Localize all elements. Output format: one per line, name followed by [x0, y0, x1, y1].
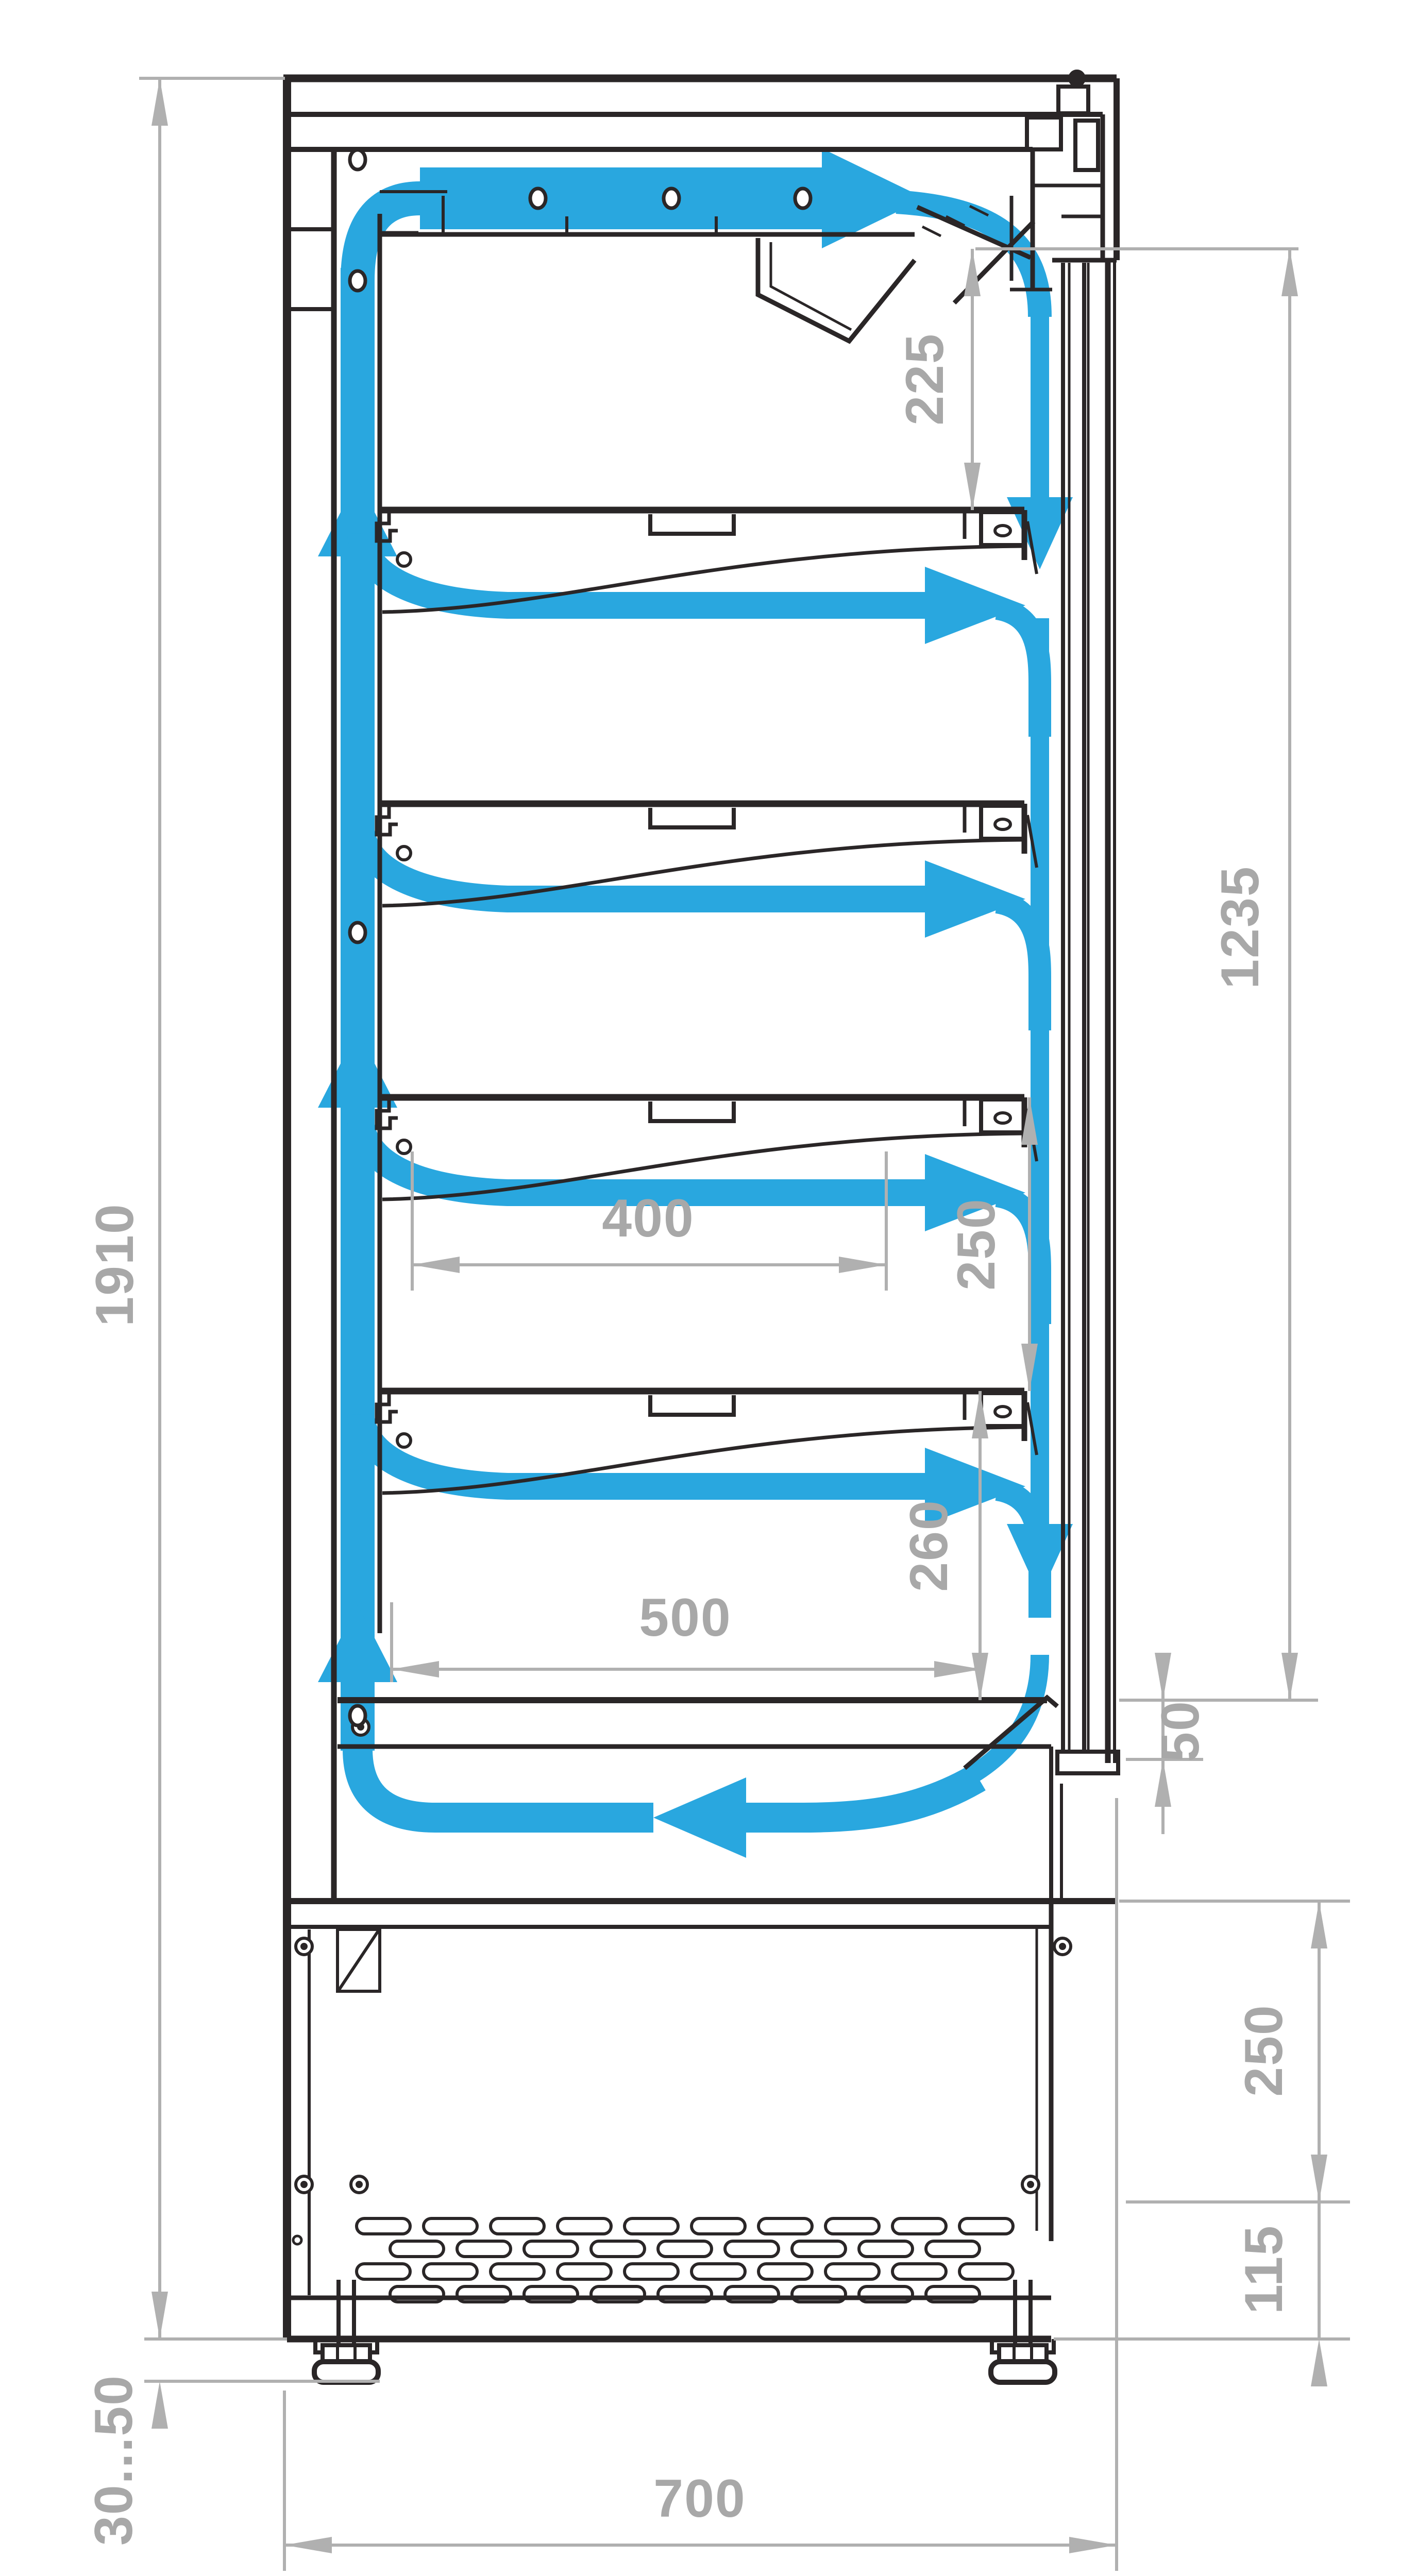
airflow-band	[897, 202, 1040, 317]
bracket-hole	[995, 819, 1010, 829]
dimension-label-leg-adjust-range: 30...50	[84, 2375, 144, 2546]
grille-slot	[725, 2241, 779, 2257]
dimension-label-machine-height: 250	[1234, 2004, 1294, 2097]
airflow-band	[997, 1489, 1040, 1618]
dimension-arrowhead	[392, 1661, 439, 1677]
foot-pad	[991, 2362, 1055, 2382]
dimension-label-deck-depth: 500	[639, 1588, 732, 1648]
grille-slot	[758, 2264, 812, 2279]
dimension-arrowhead	[412, 1257, 460, 1273]
grille-slot	[691, 2218, 745, 2234]
grille-slot	[792, 2241, 846, 2257]
dimension-label-shelf-depth: 400	[602, 1189, 695, 1248]
dimension-label-overall-height: 1910	[85, 1203, 145, 1326]
grille-slot	[424, 2264, 477, 2279]
duct-screw-icon	[530, 189, 546, 208]
glass-door	[1057, 260, 1118, 1773]
grille-slot	[591, 2241, 645, 2257]
duct-screw-icon	[350, 923, 365, 942]
technical-drawing-page: 1910 225 1235 250 400 260 500 50 250 115…	[0, 0, 1417, 2576]
dimension-labels: 1910 225 1235 250 400 260 500 50 250 115…	[84, 333, 1294, 2546]
grille-slot	[424, 2218, 477, 2234]
grille-slot	[558, 2264, 611, 2279]
bracket-hole	[995, 1113, 1010, 1123]
dimension-arrowhead	[1311, 2155, 1327, 2202]
grille-slot	[959, 2264, 1013, 2279]
dimension-arrowhead	[1311, 2339, 1327, 2386]
dimension-arrowhead	[284, 2537, 332, 2553]
dimension-layer	[139, 78, 1350, 2571]
shelf-line	[650, 1101, 734, 1121]
leveling-foot	[991, 2280, 1055, 2382]
grille-slot	[926, 2241, 980, 2257]
grille-slot	[825, 2218, 879, 2234]
dimension-label-display-opening: 1235	[1210, 866, 1270, 989]
grille-slot	[558, 2218, 611, 2234]
airflow-band	[947, 1655, 1040, 1788]
grille-slot	[625, 2264, 678, 2279]
shelf-front-bracket	[981, 1393, 1024, 1426]
dimension-arrowhead	[1281, 249, 1298, 296]
dimension-arrowhead	[151, 78, 168, 126]
grille-slot	[859, 2241, 913, 2257]
drawing-line	[758, 238, 915, 341]
dimension-arrowhead	[151, 2381, 168, 2429]
airflow-band	[997, 902, 1040, 1030]
dimension-label-shelf-to-deck: 260	[899, 1499, 959, 1592]
grille-slot	[491, 2218, 544, 2234]
airflow-band	[361, 533, 925, 605]
grille-slot	[625, 2218, 678, 2234]
drawing-line	[339, 1931, 378, 1990]
dimension-arrowhead	[1281, 1653, 1298, 1700]
grille-slot	[491, 2264, 544, 2279]
foot-pad	[314, 2362, 378, 2382]
bracket-hole	[995, 1406, 1010, 1417]
airflow-band	[358, 1749, 653, 1818]
duct-screw-icon	[350, 1706, 365, 1725]
leveling-foot	[314, 2280, 378, 2382]
airflow-band	[361, 827, 925, 899]
grille-slot	[524, 2241, 578, 2257]
canopy-profile	[1027, 117, 1061, 149]
dimension-arrowhead	[964, 249, 981, 296]
dimension-arrowhead	[1155, 1653, 1171, 1700]
door-hinge-pin	[1069, 71, 1085, 86]
screw-icon	[1060, 1944, 1065, 1949]
dimension-arrowhead	[151, 2292, 168, 2339]
airflow-top-duct	[420, 167, 824, 229]
airflow-band	[361, 1121, 925, 1193]
cabinet-cross-section-drawing: 1910 225 1235 250 400 260 500 50 250 115…	[0, 0, 1417, 2576]
screw-icon	[1028, 2182, 1033, 2187]
airflow-band	[997, 608, 1040, 737]
duct-screw-icon	[350, 150, 365, 170]
grille-slot	[658, 2241, 712, 2257]
shelf-screw-icon	[397, 1434, 411, 1447]
grille-slot	[390, 2241, 444, 2257]
shelf-line	[650, 808, 734, 827]
bracket-hole	[995, 526, 1010, 536]
ventilation-grille	[357, 2218, 1013, 2302]
duct-screw-icon	[350, 271, 365, 291]
dimension-label-grille-height: 115	[1234, 2225, 1294, 2314]
shelf-screw-icon	[397, 553, 411, 566]
shelf-line	[650, 1395, 734, 1415]
airflow-arrowhead-riser-up	[318, 1605, 397, 1682]
screw-icon	[357, 2182, 362, 2187]
grille-slot	[758, 2218, 812, 2234]
dimension-label-top-clearance: 225	[895, 333, 955, 426]
dimension-arrowhead	[972, 1391, 988, 1438]
dimension-arrowhead	[1155, 1759, 1171, 1807]
canopy-profile	[1075, 121, 1098, 170]
grille-slot	[892, 2218, 946, 2234]
dimension-arrowhead	[1311, 1901, 1327, 1948]
airflow-band	[361, 1414, 925, 1486]
dimension-arrowhead	[964, 463, 981, 510]
duct-screw-icon	[664, 189, 679, 208]
airflow-arrowhead-return-left	[653, 1777, 746, 1858]
grille-slot	[357, 2264, 410, 2279]
drawing-line	[771, 242, 851, 330]
airflow-band	[358, 198, 420, 281]
shelf-line	[650, 514, 734, 534]
dimension-arrowhead	[1069, 2537, 1117, 2553]
shelf-front-bracket	[981, 806, 1024, 839]
screw-icon	[301, 2182, 307, 2187]
duct-screw-icon	[795, 189, 811, 208]
grille-slot	[892, 2264, 946, 2279]
shelf-front-bracket	[981, 1099, 1024, 1132]
dimension-arrowhead	[839, 1257, 886, 1273]
dimension-arrowhead	[972, 1653, 988, 1700]
grille-slot	[959, 2218, 1013, 2234]
grille-slot	[825, 2264, 879, 2279]
screw-icon	[301, 1944, 307, 1949]
dimension-label-overall-depth: 700	[653, 2469, 746, 2529]
grille-slot	[357, 2218, 410, 2234]
grille-slot	[691, 2264, 745, 2279]
grille-slot	[457, 2241, 511, 2257]
dimension-label-shelf-pitch: 250	[947, 1198, 1006, 1291]
airflow-band	[746, 1777, 978, 1818]
screw-icon	[293, 2236, 301, 2244]
hinge-block	[1058, 87, 1088, 113]
shelf-screw-icon	[397, 1140, 411, 1154]
shelf-screw-icon	[397, 846, 411, 860]
dimension-label-outlet-gap: 50	[1151, 1700, 1210, 1762]
